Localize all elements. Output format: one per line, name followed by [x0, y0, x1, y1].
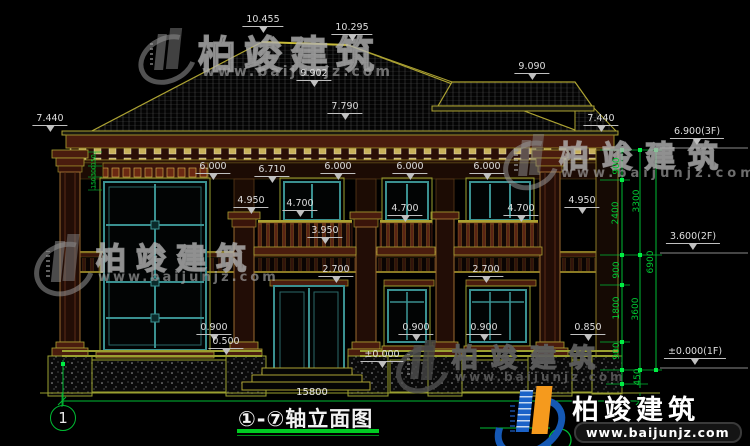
balcony-railing [254, 220, 542, 255]
window-2f-right-a [382, 178, 432, 224]
window-2f-center [280, 178, 344, 224]
brand-url: www.baijunjz.com [574, 422, 742, 443]
title-underline [237, 429, 379, 433]
elevation-drawing [0, 0, 750, 446]
frieze [62, 163, 618, 179]
level-lines-white [660, 148, 748, 368]
window-1f-right-b [464, 280, 536, 351]
cad-elevation-screenshot: 柏竣建筑 www.baijunjz.com 柏竣建筑 www.baijunjz.… [0, 0, 750, 446]
window-2f-right-b [466, 178, 534, 224]
door-main [270, 280, 348, 378]
title-underline-thin [237, 435, 379, 436]
window-1f-right-a [382, 280, 434, 351]
axis-bubble-1: 1 [50, 405, 76, 431]
pilaster-a [226, 179, 266, 396]
corner-right-wall [592, 150, 622, 394]
pilaster-c [428, 179, 462, 396]
brand-logo: 柏竣建筑 www.baijunjz.com [488, 382, 750, 446]
brand-logo-icon [492, 384, 566, 446]
window-left-tall [96, 178, 214, 358]
